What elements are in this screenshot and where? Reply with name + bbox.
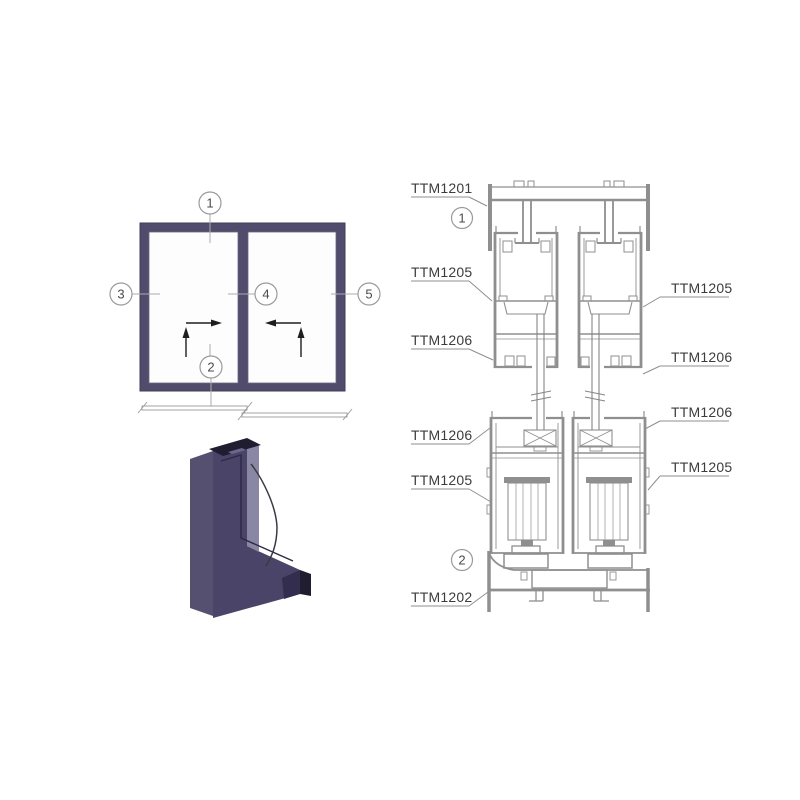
part-label-ttm1205-upper-right: TTM1205 xyxy=(671,280,732,296)
part-label-ttm1206-upper-right: TTM1206 xyxy=(671,349,732,365)
igu-bottom-cap xyxy=(521,540,533,546)
callout-label-2: 2 xyxy=(207,360,214,375)
right-part-labels: TTM1205 TTM1206 TTM1206 TTM1205 xyxy=(643,280,732,490)
section-callout-label-2: 2 xyxy=(458,553,465,568)
callout-5: 5 xyxy=(358,283,380,305)
callout-label-5: 5 xyxy=(365,287,372,302)
window-elevation: 1 2 3 4 5 xyxy=(110,192,380,420)
glass-pane-left xyxy=(531,314,551,430)
part-label-ttm1206-upper-left: TTM1206 xyxy=(411,332,472,348)
cross-section: 1 2 TTM1201 TTM1205 TTM1206 TTM1206 TTM1… xyxy=(411,180,732,612)
part-label-ttm1206-lower-right: TTM1206 xyxy=(671,404,732,420)
lower-sash-right xyxy=(572,411,649,568)
igu-top-cap xyxy=(504,477,550,483)
profile-3d-fin-face xyxy=(190,451,213,616)
part-label-ttm1201: TTM1201 xyxy=(411,180,472,196)
callout-1: 1 xyxy=(199,192,221,214)
section-callout-2: 2 xyxy=(452,550,473,571)
section-callout-label-1: 1 xyxy=(458,211,465,226)
glass-pane-right xyxy=(585,314,605,430)
callout-label-4: 4 xyxy=(262,287,269,302)
callout-label-1: 1 xyxy=(206,196,213,211)
part-label-ttm1205-upper-left: TTM1205 xyxy=(411,264,472,280)
dimension-bar-left xyxy=(138,402,252,413)
diagram-page: 1 2 3 4 5 xyxy=(0,0,800,800)
sill-profile xyxy=(488,551,650,612)
profile-3d xyxy=(190,438,311,618)
profile-3d-side-face xyxy=(247,440,259,552)
dimension-bar-right xyxy=(238,409,352,420)
callout-3: 3 xyxy=(110,283,132,305)
upper-sash-left xyxy=(494,226,558,368)
insulated-glass-unit xyxy=(508,483,546,540)
part-label-ttm1205-lower-left: TTM1205 xyxy=(411,472,472,488)
profile-3d-leg-cut-section xyxy=(300,570,311,596)
callout-label-3: 3 xyxy=(117,287,124,302)
part-label-ttm1206-lower-left: TTM1206 xyxy=(411,427,472,443)
section-callout-1: 1 xyxy=(452,208,473,229)
elevation-glass-right xyxy=(248,232,336,383)
part-label-ttm1205-lower-right: TTM1205 xyxy=(671,459,732,475)
upper-sash-right xyxy=(578,226,642,368)
left-part-labels: TTM1201 TTM1205 TTM1206 TTM1206 TTM1205 … xyxy=(411,180,493,606)
head-track-left xyxy=(515,200,539,243)
part-label-ttm1202: TTM1202 xyxy=(411,589,472,605)
roller-pedestal-base xyxy=(504,554,548,568)
elevation-glass-left xyxy=(149,232,238,383)
diagram-svg: 1 2 3 4 5 xyxy=(0,0,800,800)
callout-4: 4 xyxy=(255,283,277,305)
callout-2: 2 xyxy=(200,356,222,378)
lower-sash-left xyxy=(487,411,564,568)
head-track-right xyxy=(597,200,621,243)
